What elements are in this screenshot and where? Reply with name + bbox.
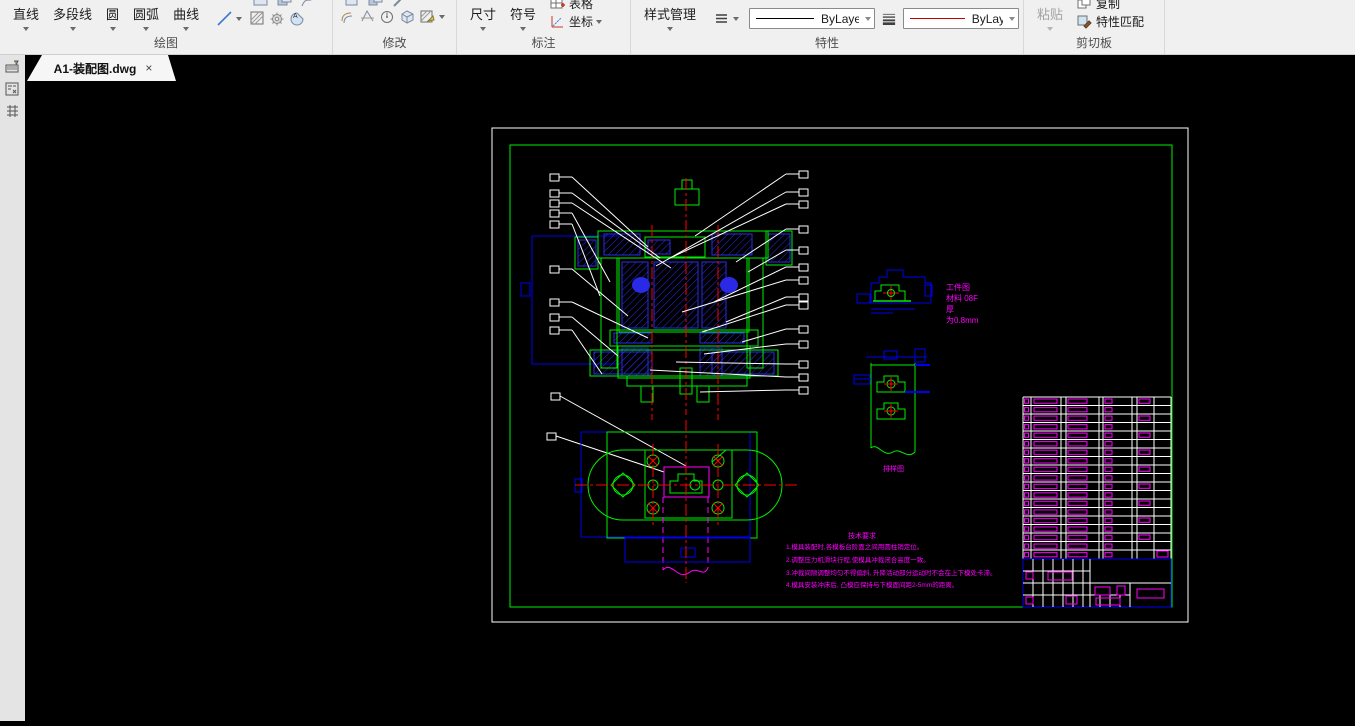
table-icon bbox=[549, 0, 566, 12]
lineweight-icon[interactable] bbox=[881, 10, 897, 27]
chevron-down-icon[interactable] bbox=[236, 17, 242, 21]
panel-draw: 直线 多段线 圆 圆弧 曲线 A 绘图 bbox=[0, 0, 333, 54]
workpiece-note-line2: 材料 08F bbox=[946, 293, 978, 303]
panel-label-modify: 修改 bbox=[333, 34, 456, 54]
polyline-label: 多段线 bbox=[53, 4, 92, 23]
chevron-down-icon bbox=[70, 27, 76, 31]
svg-text:A: A bbox=[293, 13, 298, 20]
block-icon[interactable] bbox=[276, 0, 293, 9]
copy-object-icon[interactable] bbox=[367, 0, 384, 9]
drawing-canvas[interactable]: 工件图 材料 08F 厚 为0.8mm bbox=[25, 81, 1355, 721]
offset-icon[interactable] bbox=[339, 8, 356, 25]
gear-icon[interactable] bbox=[269, 10, 286, 27]
construction-line-icon[interactable] bbox=[216, 10, 233, 27]
curve-label: 曲线 bbox=[173, 4, 199, 23]
linetype-combo[interactable]: ByLayer bbox=[749, 8, 875, 29]
chevron-down-icon bbox=[667, 27, 673, 31]
chevron-down-icon[interactable] bbox=[439, 15, 445, 19]
copy-button[interactable]: 复制 bbox=[1076, 0, 1144, 12]
panel-clipboard: 粘贴 复制 特性匹配 剪切板 bbox=[1024, 0, 1165, 54]
left-tool-strip bbox=[0, 55, 25, 721]
tech-req-item-3: 3.冲裁间隙调整均匀不得偏斜, 升降活动部分运动时不会在上下模处卡滞。 bbox=[786, 568, 997, 577]
chevron-down-icon bbox=[1009, 17, 1015, 21]
coordinate-label: 坐标 bbox=[569, 13, 593, 30]
polyline-button[interactable]: 多段线 bbox=[46, 2, 99, 31]
copy-label: 复制 bbox=[1096, 0, 1120, 12]
chevron-down-icon bbox=[596, 20, 602, 24]
chevron-down-icon bbox=[110, 27, 116, 31]
line-button[interactable]: 直线 bbox=[6, 2, 46, 31]
dimension-label: 尺寸 bbox=[470, 4, 496, 23]
layers-icon bbox=[713, 10, 730, 27]
panel-label-properties: 特性 bbox=[631, 34, 1023, 54]
modify-clipped-icons bbox=[343, 0, 408, 9]
tech-req-title: 技术要求 bbox=[848, 531, 876, 540]
edit-hatch-icon[interactable] bbox=[419, 8, 436, 25]
match-properties-icon bbox=[1076, 13, 1093, 30]
chevron-down-icon bbox=[865, 17, 871, 21]
style-manager-label: 样式管理 bbox=[644, 4, 696, 23]
color-preview bbox=[910, 18, 965, 19]
panel-label-draw: 绘图 bbox=[0, 34, 332, 54]
erase-icon[interactable] bbox=[391, 0, 408, 9]
linetype-value: ByLayer bbox=[821, 12, 859, 26]
match-properties-label: 特性匹配 bbox=[1096, 13, 1144, 30]
tech-req-item-4: 4.模具安装冲床后, 凸模应保持与下模面间距2-5mm的距离。 bbox=[786, 580, 958, 589]
document-tab[interactable]: A1-装配图.dwg × bbox=[27, 55, 179, 81]
table-label: 表格 bbox=[569, 0, 593, 12]
style-manager-button[interactable]: 样式管理 bbox=[637, 2, 703, 31]
parts-list-table bbox=[1023, 397, 1171, 559]
tech-req-item-1: 1.模具装配时,各模板台阶面之间用圆柱销定位。 bbox=[786, 542, 923, 551]
ribbon-filler bbox=[1165, 0, 1355, 54]
coordinate-icon bbox=[549, 13, 566, 30]
3d-box-icon[interactable] bbox=[399, 8, 416, 25]
rotate-icon[interactable] bbox=[379, 8, 396, 25]
layout-icon[interactable] bbox=[4, 59, 21, 76]
workpiece-note-line4: 为0.8mm bbox=[946, 315, 979, 325]
symbol-button[interactable]: 符号 bbox=[503, 2, 543, 31]
panel-properties: 样式管理 ByLayer ByLayer 特性 bbox=[631, 0, 1024, 54]
chevron-down-icon bbox=[143, 27, 149, 31]
close-icon[interactable]: × bbox=[145, 61, 152, 75]
assembly-section-view[interactable] bbox=[521, 178, 792, 420]
panel-modify: 修改 bbox=[333, 0, 457, 54]
document-tab-title: A1-装配图.dwg bbox=[54, 60, 137, 77]
spline-icon[interactable] bbox=[300, 0, 317, 9]
line-label: 直线 bbox=[13, 4, 39, 23]
tech-req-item-2: 2.调整压力机滑块行程,使模具冲裁闭合高度一致。 bbox=[786, 555, 930, 564]
symbol-label: 符号 bbox=[510, 4, 536, 23]
workpiece-note-line1: 工件图 bbox=[946, 282, 970, 292]
region-text-icon[interactable]: A bbox=[289, 10, 306, 27]
canvas: 工件图 材料 08F 厚 为0.8mm bbox=[25, 81, 1355, 721]
circle-button[interactable]: 圆 bbox=[99, 2, 126, 31]
chevron-down-icon bbox=[733, 17, 739, 21]
dimension-button[interactable]: 尺寸 bbox=[463, 2, 503, 31]
layer-control[interactable] bbox=[713, 10, 739, 27]
panel-label-clipboard: 剪切板 bbox=[1024, 34, 1164, 54]
arc-label: 圆弧 bbox=[133, 4, 159, 23]
chevron-down-icon bbox=[23, 27, 29, 31]
chevron-down-icon bbox=[480, 27, 486, 31]
linetype-preview bbox=[756, 18, 814, 19]
strip-layout-view[interactable]: 排样图 bbox=[854, 349, 930, 473]
match-properties-button[interactable]: 特性匹配 bbox=[1076, 13, 1144, 30]
color-value: ByLayer bbox=[972, 12, 1003, 26]
trim-icon[interactable] bbox=[359, 8, 376, 25]
workpiece-note-line3: 厚 bbox=[946, 305, 954, 314]
chevron-down-icon bbox=[183, 27, 189, 31]
technical-requirements: 技术要求 1.模具装配时,各模板台阶面之间用圆柱销定位。 2.调整压力机滑块行程… bbox=[786, 531, 997, 589]
panel-annotate: 尺寸 符号 表格 坐标 标注 bbox=[457, 0, 631, 54]
panel-label-annotate: 标注 bbox=[457, 34, 630, 54]
paste-label: 粘贴 bbox=[1037, 4, 1063, 23]
document-tab-bar: A1-装配图.dwg × bbox=[25, 55, 1355, 81]
block-palette-icon[interactable] bbox=[4, 81, 21, 98]
paste-button[interactable]: 粘贴 bbox=[1030, 2, 1070, 31]
circle-label: 圆 bbox=[106, 4, 119, 23]
coordinate-button[interactable]: 坐标 bbox=[549, 13, 602, 30]
copy-icon bbox=[1076, 0, 1093, 12]
chevron-down-icon bbox=[1047, 27, 1053, 31]
chevron-down-icon bbox=[520, 27, 526, 31]
plan-view[interactable] bbox=[575, 420, 800, 583]
curve-button[interactable]: 曲线 bbox=[166, 2, 206, 31]
move-icon[interactable] bbox=[343, 0, 360, 9]
color-combo[interactable]: ByLayer bbox=[903, 8, 1019, 29]
draw-clipped-icons bbox=[252, 0, 317, 9]
table-button[interactable]: 表格 bbox=[549, 0, 602, 12]
strip-layout-label: 排样图 bbox=[883, 464, 904, 473]
sheet-set-icon[interactable] bbox=[4, 103, 21, 120]
rectangle-icon[interactable] bbox=[252, 0, 269, 9]
hatch-icon[interactable] bbox=[249, 10, 266, 27]
title-block bbox=[1023, 559, 1171, 607]
ribbon: 直线 多段线 圆 圆弧 曲线 A 绘图 bbox=[0, 0, 1355, 55]
workpiece-view[interactable]: 工件图 材料 08F 厚 为0.8mm bbox=[857, 270, 979, 325]
arc-button[interactable]: 圆弧 bbox=[126, 2, 166, 31]
main-area: A1-装配图.dwg × bbox=[25, 55, 1355, 721]
